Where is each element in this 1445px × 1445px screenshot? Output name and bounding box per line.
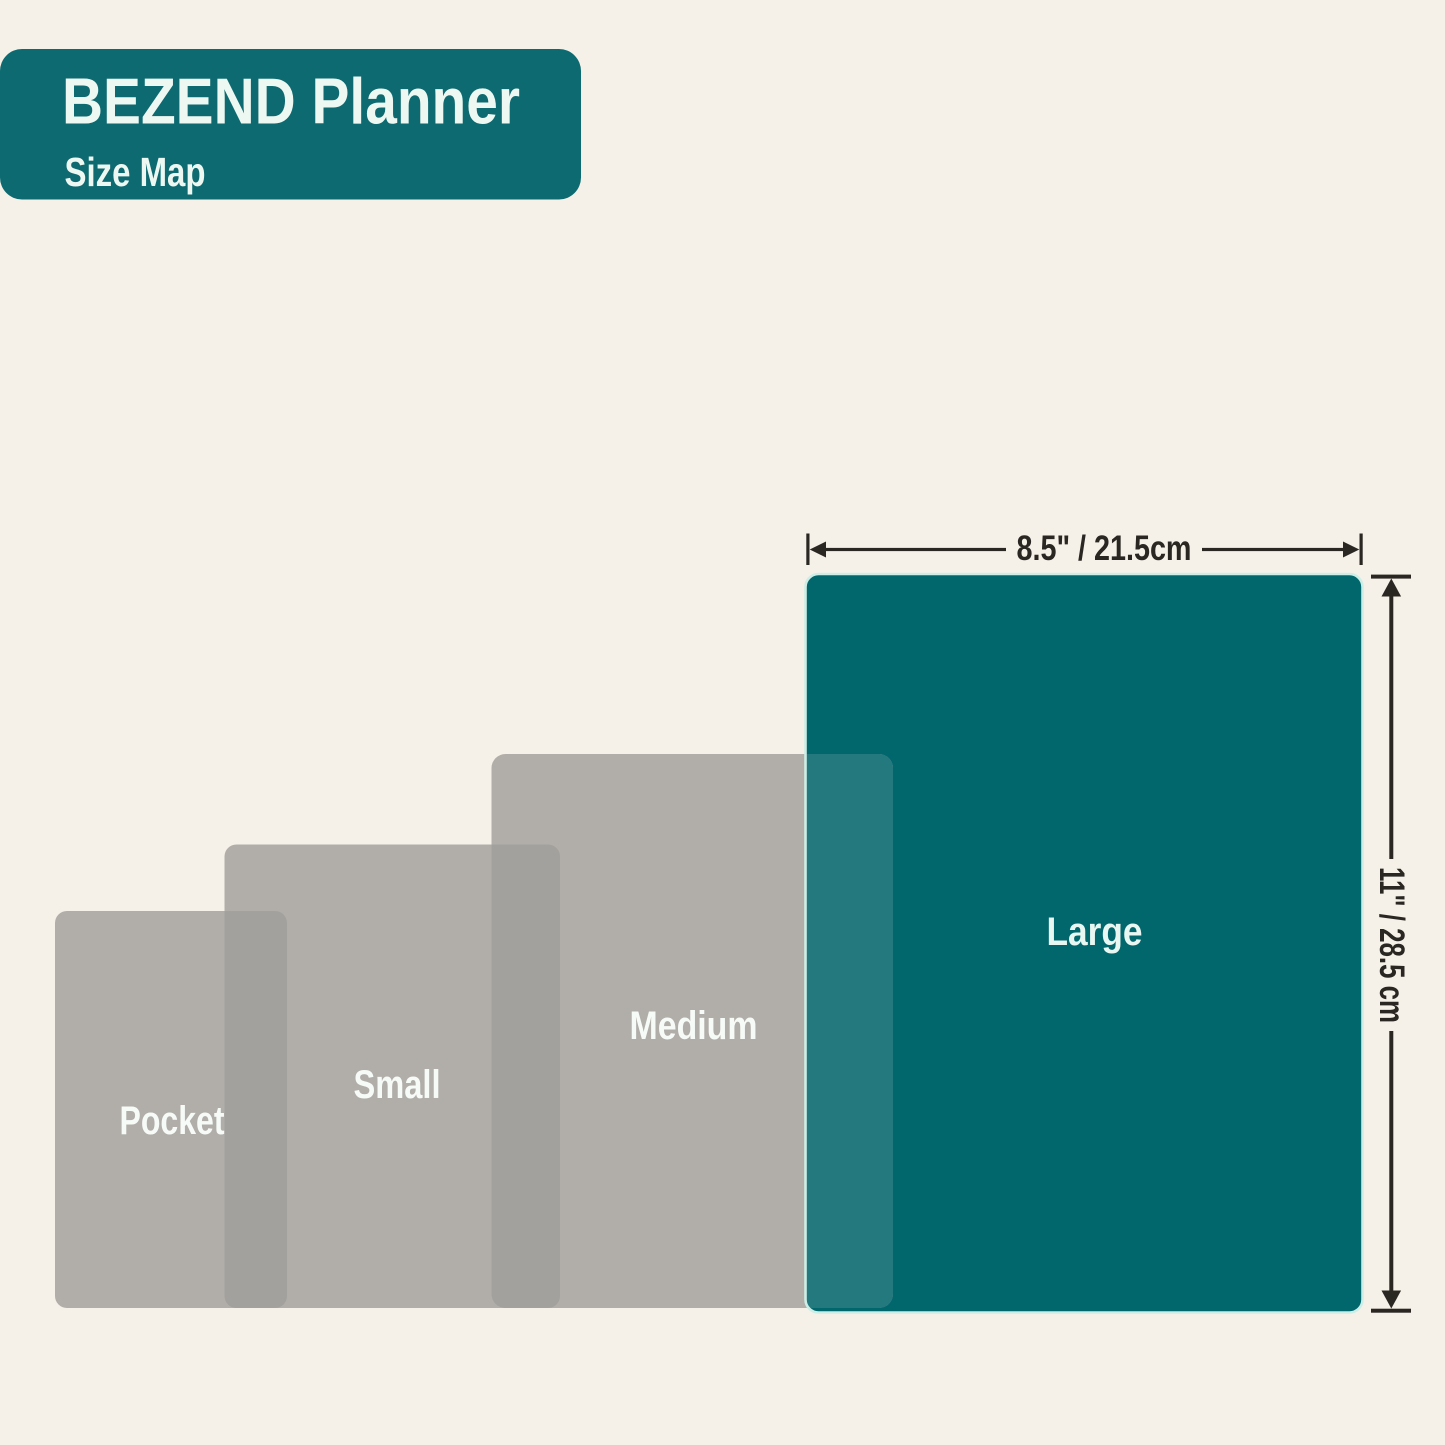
svg-text:Size Map: Size Map (65, 149, 206, 195)
svg-text:Small: Small (354, 1063, 441, 1107)
svg-text:8.5" / 21.5cm: 8.5" / 21.5cm (1017, 529, 1192, 568)
svg-text:Pocket: Pocket (120, 1099, 225, 1143)
svg-text:11" / 28.5 cm: 11" / 28.5 cm (1372, 867, 1411, 1023)
svg-text:Large: Large (1047, 910, 1143, 954)
svg-text:BEZEND Planner: BEZEND Planner (62, 65, 520, 138)
svg-text:Medium: Medium (630, 1004, 758, 1048)
